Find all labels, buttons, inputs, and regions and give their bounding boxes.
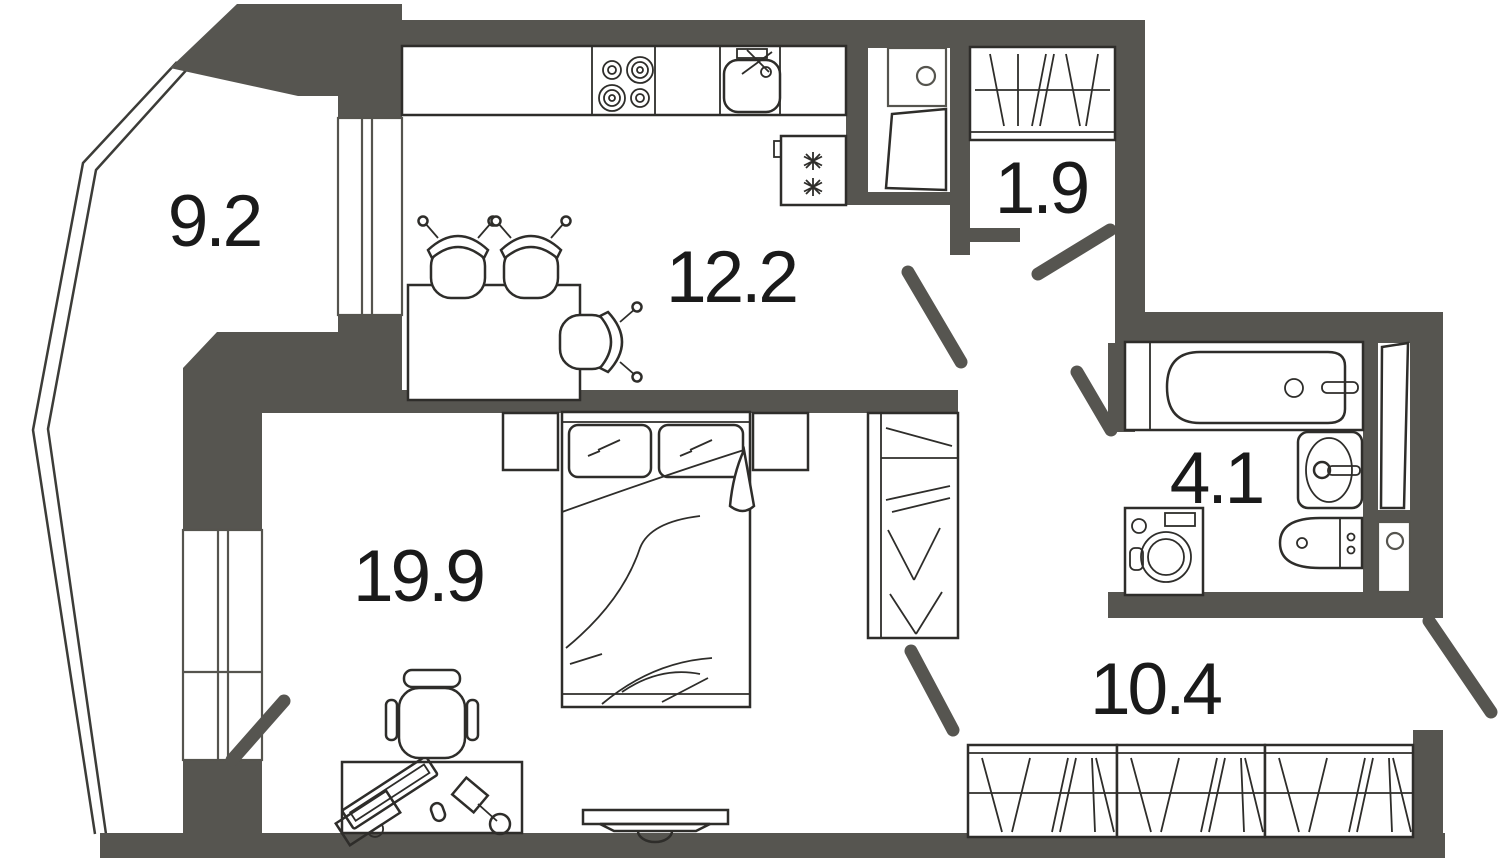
dining-table-icon <box>408 285 580 400</box>
hall-door-leaf-icon <box>1038 230 1110 274</box>
bedroom-balcony-window-icon <box>183 530 262 760</box>
double-bed-icon <box>562 412 754 707</box>
nightstand-icon <box>753 413 808 470</box>
bathtub-icon <box>1125 342 1363 430</box>
room-label-living-room: 19.9 <box>353 536 483 617</box>
washbasin-icon <box>1298 432 1362 508</box>
washing-machine-icon <box>1125 508 1203 595</box>
floor-plan-canvas: 9.2 12.2 1.9 19.9 4.1 10.4 <box>0 0 1500 861</box>
corridor-wardrobe-icon <box>1265 745 1413 837</box>
nightstand-icon <box>503 413 558 470</box>
bedroom-door-leaf-icon <box>911 651 953 730</box>
corridor-vent-shaft-icon <box>1378 522 1410 592</box>
balcony-glazing <box>33 62 190 834</box>
room-label-kitchen: 12.2 <box>666 237 796 318</box>
bedroom-wardrobe-icon <box>868 413 958 638</box>
kitchen-door-leaf-icon <box>908 272 961 362</box>
floor-plan: 9.2 12.2 1.9 19.9 4.1 10.4 <box>0 0 1500 861</box>
corridor-wardrobe-icon <box>1117 745 1265 837</box>
corridor-wardrobe-icon <box>968 745 1117 837</box>
bathroom-door-leaf-icon <box>1077 372 1111 430</box>
kitchen-vent-shaft-icon <box>888 48 946 106</box>
room-label-bathroom: 4.1 <box>1170 438 1263 519</box>
room-label-corridor: 10.4 <box>1090 649 1221 730</box>
open-door-panel-icon <box>886 109 946 190</box>
kitchen-balcony-window-icon <box>338 118 402 315</box>
room-label-balcony: 9.2 <box>168 181 260 262</box>
open-door-panel-icon <box>1381 343 1408 508</box>
room-label-hall: 1.9 <box>995 148 1088 229</box>
entrance-door-leaf-icon <box>1429 621 1491 712</box>
hall-wardrobe-icon <box>970 47 1115 140</box>
office-chair-icon <box>386 670 478 758</box>
fridge-icon <box>774 136 846 205</box>
toilet-icon <box>1280 518 1362 568</box>
